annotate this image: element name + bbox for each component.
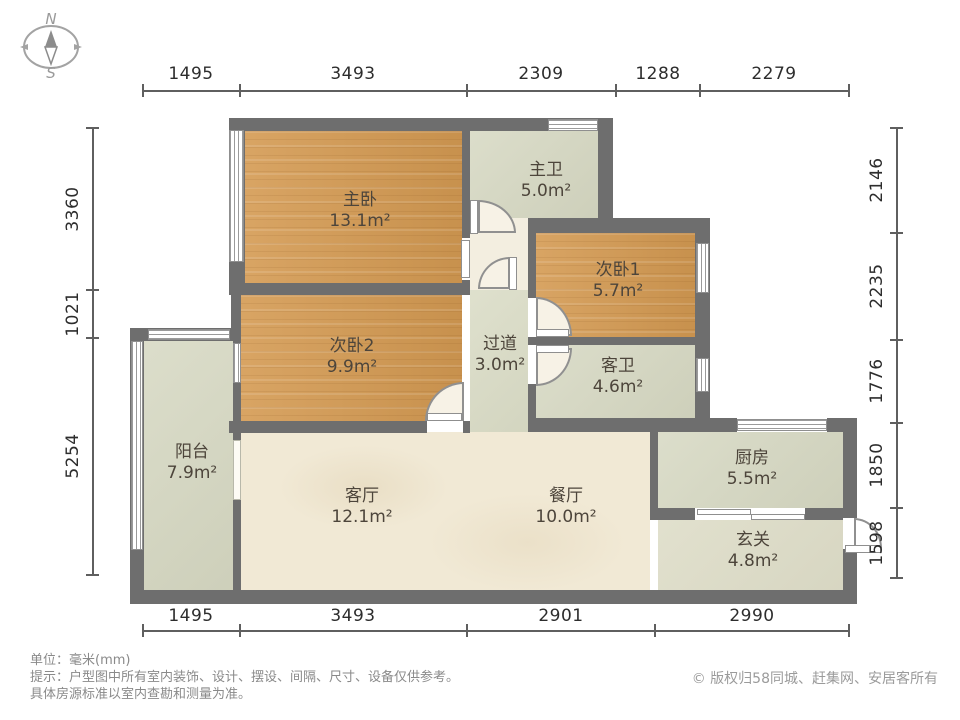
room-name: 餐厅 [549, 486, 583, 506]
dim-value-right: 1598 [867, 498, 889, 588]
room-name: 主卧 [343, 190, 377, 210]
dim-tick [890, 577, 903, 579]
room-area: 5.0m² [491, 181, 601, 202]
hallway-door-leaf [509, 257, 517, 290]
room-label-master-bath: 主卫 5.0m² [491, 160, 601, 201]
wall-segment [528, 233, 536, 298]
dim-value-top: 1495 [146, 64, 236, 86]
dim-value-top: 2279 [729, 64, 819, 86]
room-label-bedroom2: 次卧2 9.9m² [297, 336, 407, 377]
tip-note-line2: 具体房源标准以室内查勘和测量为准。 [30, 686, 251, 703]
room-label-dining: 餐厅 10.0m² [511, 486, 621, 527]
wall-segment [137, 590, 853, 604]
kitchen-sliding-door-panel [751, 514, 805, 520]
room-name: 客卫 [601, 356, 635, 376]
dim-tick [239, 624, 241, 637]
dim-line-bottom [143, 630, 849, 632]
dim-tick [86, 289, 99, 291]
dim-value-top: 1288 [613, 64, 703, 86]
dim-tick [86, 574, 99, 576]
room-area: 9.9m² [297, 357, 407, 378]
room-area: 5.7m² [563, 281, 673, 302]
master-bedroom-window [229, 130, 244, 262]
wall-segment [528, 384, 536, 418]
room-name: 玄关 [736, 530, 770, 550]
room-area: 7.9m² [137, 463, 247, 484]
room-label-kitchen: 厨房 5.5m² [697, 448, 807, 489]
wall-segment [650, 418, 658, 520]
room-name: 厨房 [735, 448, 769, 468]
room-name: 阳台 [175, 442, 209, 462]
dim-value-bottom: 2901 [516, 606, 606, 628]
kitchen-sliding-door-panel [697, 509, 751, 515]
dim-tick [142, 84, 144, 97]
room-label-master-bedroom: 主卧 13.1m² [305, 190, 415, 231]
room-label-entry: 玄关 4.8m² [698, 530, 808, 571]
room-name: 客厅 [345, 486, 379, 506]
wall-segment [233, 500, 241, 592]
dim-tick [848, 624, 850, 637]
bedroom1-window [696, 243, 709, 293]
room-name: 次卧2 [330, 336, 375, 356]
dim-line-right [896, 128, 898, 578]
wall-segment [843, 418, 857, 518]
copyright-icon: © [692, 671, 706, 687]
dim-value-left: 3360 [63, 164, 85, 254]
guest-bath-door-leaf [536, 345, 569, 353]
room-label-bedroom1: 次卧1 5.7m² [563, 260, 673, 301]
dim-tick [890, 507, 903, 509]
wall-segment [843, 548, 857, 604]
dim-tick [890, 232, 903, 234]
balcony-top-window [148, 329, 230, 340]
kitchen-window [737, 419, 827, 431]
dim-value-left: 5254 [63, 411, 85, 501]
room-name: 次卧1 [596, 260, 641, 280]
room-area: 4.6m² [563, 377, 673, 398]
dim-tick [239, 84, 241, 97]
dim-tick [890, 422, 903, 424]
dim-value-left: 1021 [63, 269, 85, 359]
master-bedroom-door-leaf [461, 240, 470, 278]
room-label-guest-bath: 客卫 4.6m² [563, 356, 673, 397]
guest-bath-window [696, 358, 709, 392]
room-label-living: 客厅 12.1m² [307, 486, 417, 527]
dim-tick [466, 624, 468, 637]
dim-value-right: 1850 [867, 420, 889, 510]
room-label-balcony: 阳台 7.9m² [137, 442, 247, 483]
compass-south-label: S [46, 64, 56, 82]
dim-value-right: 2146 [867, 135, 889, 225]
wall-segment [528, 218, 710, 233]
room-area: 3.0m² [460, 355, 540, 376]
master-bath-door-leaf [470, 200, 478, 234]
dim-tick [142, 624, 144, 637]
compass-rose: N S [12, 6, 90, 84]
wall-segment [463, 421, 470, 433]
copyright-text: 版权归58同城、赶集网、安居客所有 [710, 671, 938, 687]
tip-note-line1: 提示：户型图中所有室内装饰、设计、摆设、间隔、尺寸、设备仅供参考。 [30, 669, 459, 686]
wall-segment [528, 337, 710, 345]
dim-tick [86, 127, 99, 129]
bedroom2-door-leaf [427, 413, 462, 421]
dim-tick [890, 127, 903, 129]
bedroom2-balcony-window [233, 343, 241, 383]
room-label-hallway: 过道 3.0m² [460, 334, 540, 375]
dim-value-bottom: 2990 [707, 606, 797, 628]
dim-line-left [92, 128, 94, 575]
dim-value-bottom: 1495 [146, 606, 236, 628]
dim-value-top: 3493 [308, 64, 398, 86]
dim-tick [890, 339, 903, 341]
room-area: 10.0m² [511, 507, 621, 528]
room-area: 12.1m² [307, 507, 417, 528]
dim-tick [86, 337, 99, 339]
dim-value-right: 2235 [867, 241, 889, 331]
wall-segment [462, 118, 470, 238]
wall-segment [229, 421, 427, 433]
bedroom1-door-leaf [536, 329, 569, 337]
room-area: 5.5m² [697, 469, 807, 490]
unit-note: 单位：毫米(mm) [30, 652, 130, 669]
room-name: 主卫 [529, 160, 563, 180]
floor-plan-page: { "compass": { "north": "N", "south": "S… [0, 0, 960, 720]
wall-segment [650, 418, 737, 432]
copyright-note: © 版权归58同城、赶集网、安居客所有 [692, 668, 938, 688]
master-bath-window [548, 119, 598, 131]
compass-needle-north-icon [45, 30, 57, 47]
dim-tick [654, 624, 656, 637]
dim-value-bottom: 3493 [308, 606, 398, 628]
compass-needle-south-icon [45, 47, 57, 64]
dim-tick [466, 84, 468, 97]
room-name: 过道 [483, 334, 517, 354]
wall-segment [650, 508, 695, 520]
compass-north-label: N [45, 10, 56, 28]
dim-line-top [143, 90, 849, 92]
dim-value-top: 2309 [496, 64, 586, 86]
room-area: 13.1m² [305, 211, 415, 232]
wall-segment [229, 283, 470, 295]
dim-tick [848, 84, 850, 97]
room-area: 4.8m² [698, 551, 808, 572]
dim-value-right: 1776 [867, 336, 889, 426]
